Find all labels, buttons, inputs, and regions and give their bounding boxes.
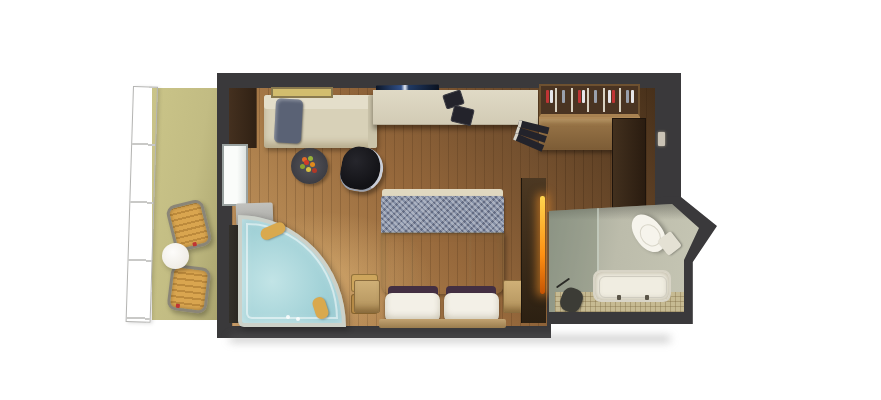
corner-cabinet bbox=[229, 88, 257, 148]
round-rug bbox=[291, 148, 328, 184]
flower-bouquet-icon bbox=[304, 160, 309, 165]
hanger-white-icon bbox=[631, 90, 634, 103]
bathtub bbox=[593, 270, 671, 302]
closet-divider bbox=[571, 88, 573, 112]
drop-shadow bbox=[230, 336, 670, 342]
divider-light-strip bbox=[540, 196, 545, 294]
closet-divider bbox=[603, 88, 605, 112]
balcony-window bbox=[222, 144, 248, 206]
entry-door bbox=[612, 118, 646, 208]
bed-runner bbox=[381, 196, 504, 233]
hanger-gray-icon bbox=[562, 90, 565, 103]
hanger-red-icon bbox=[578, 90, 581, 103]
wall-art bbox=[271, 87, 333, 98]
headboard bbox=[379, 319, 506, 328]
hanger-red-icon bbox=[612, 90, 615, 103]
closet-divider bbox=[555, 88, 557, 112]
deck-chair-bottom bbox=[166, 264, 211, 315]
hanger-gray-icon bbox=[594, 90, 597, 103]
hanger-white-icon bbox=[550, 90, 553, 103]
hanger-white-icon bbox=[582, 90, 585, 103]
light-switch bbox=[658, 132, 665, 146]
closet-divider bbox=[587, 88, 589, 112]
hanger-white-icon bbox=[608, 90, 611, 103]
sofa-pillow bbox=[274, 98, 303, 143]
hanger-gray-icon bbox=[626, 90, 629, 103]
bed-duvet bbox=[381, 232, 504, 294]
nightstand-left bbox=[354, 280, 380, 313]
pillow-left bbox=[385, 293, 440, 322]
pillow-right bbox=[444, 293, 499, 322]
tub-jets bbox=[286, 315, 290, 319]
bathtub-rim bbox=[599, 276, 667, 298]
balcony-table bbox=[162, 243, 189, 269]
chair-tag bbox=[192, 242, 197, 247]
stateroom-floor-plan bbox=[0, 0, 881, 400]
hanger-red-icon bbox=[546, 90, 549, 103]
chair-tag bbox=[176, 304, 180, 308]
bathroom-floor bbox=[549, 204, 699, 312]
bathtub-fixtures bbox=[617, 295, 621, 300]
closet-divider bbox=[619, 88, 621, 112]
closet bbox=[539, 84, 640, 117]
